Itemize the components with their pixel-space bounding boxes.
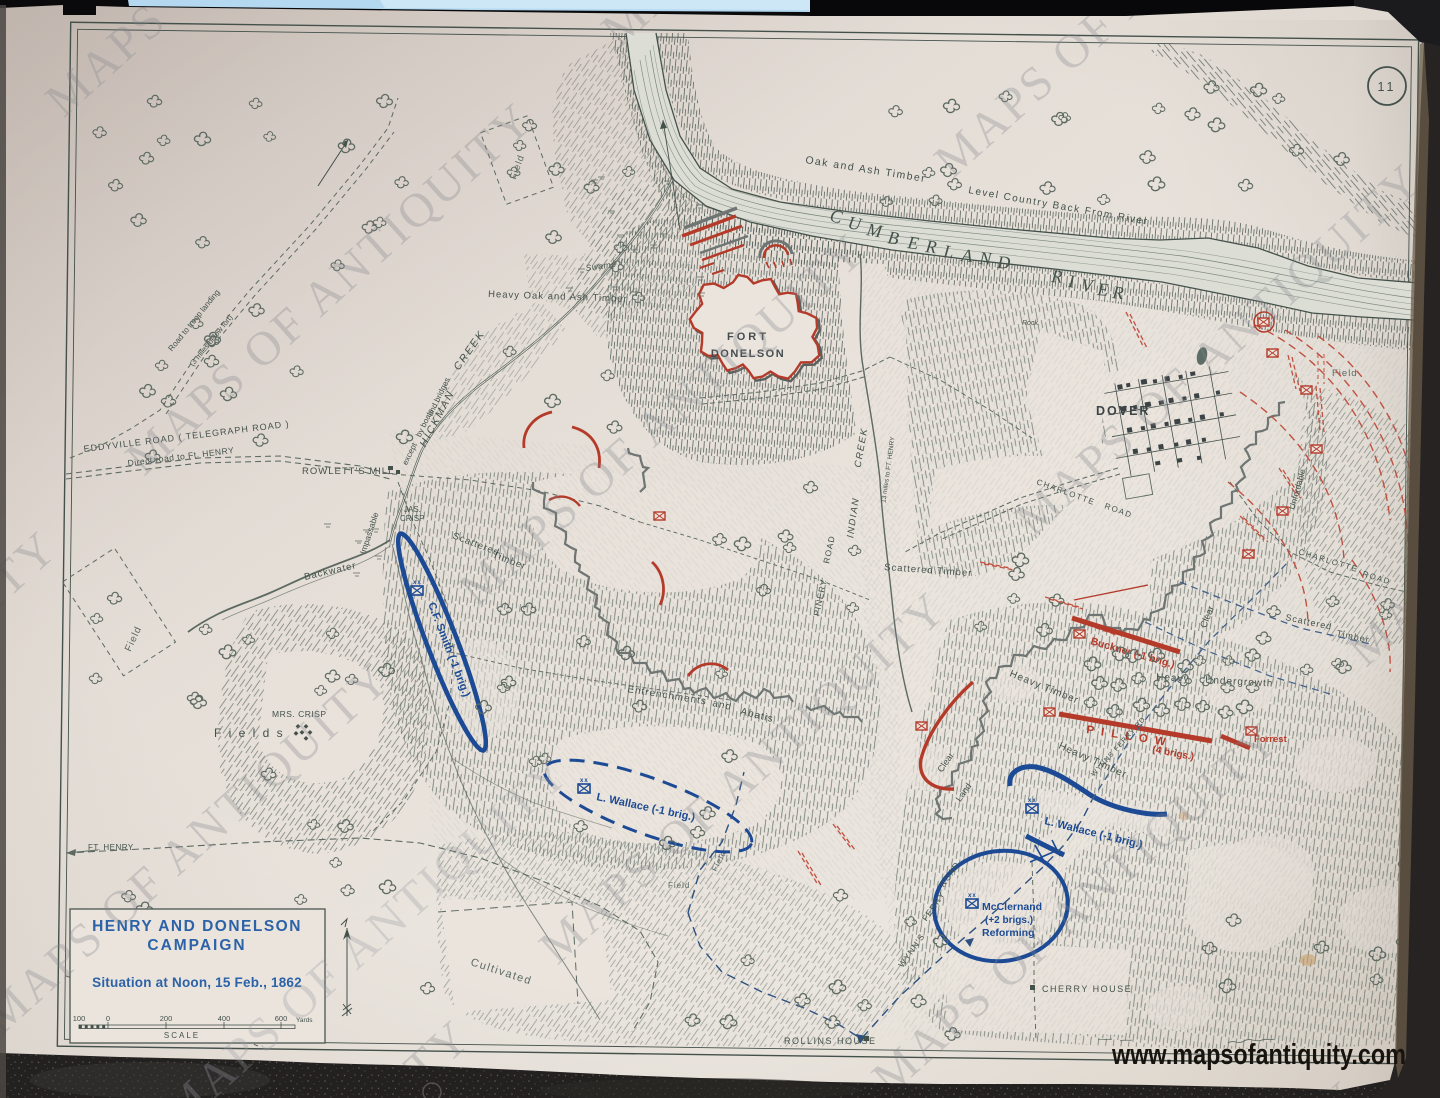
- svg-text:R: R: [924, 236, 938, 257]
- svg-text:D: D: [996, 252, 1011, 273]
- svg-text:L: L: [942, 241, 955, 262]
- svg-text:CHERRY HOUSE: CHERRY HOUSE: [1042, 984, 1132, 994]
- svg-text:ROWLETT'S MILL: ROWLETT'S MILL: [302, 466, 394, 477]
- svg-text:FT. HENRY: FT. HENRY: [88, 843, 134, 852]
- svg-text:JAS.: JAS.: [404, 505, 421, 514]
- svg-text:0: 0: [106, 1014, 110, 1023]
- svg-text:Heavy: Heavy: [1156, 672, 1190, 685]
- svg-text:11: 11: [1378, 80, 1397, 94]
- svg-text:Rock: Rock: [1022, 320, 1038, 327]
- svg-text:SCALE: SCALE: [164, 1031, 200, 1040]
- svg-text:Field: Field: [1332, 368, 1358, 379]
- svg-text:CAMPAIGN: CAMPAIGN: [147, 937, 246, 954]
- svg-text:www.mapsofantiquity.com: www.mapsofantiquity.com: [1111, 1039, 1406, 1071]
- svg-text:ROLLINS HOUSE: ROLLINS HOUSE: [784, 1036, 877, 1046]
- svg-text:100: 100: [73, 1014, 86, 1023]
- svg-text:N: N: [978, 248, 993, 269]
- svg-text:R: R: [1050, 266, 1063, 287]
- svg-text:Field: Field: [668, 881, 690, 890]
- svg-text:400: 400: [218, 1014, 231, 1023]
- svg-text:E: E: [1096, 279, 1110, 300]
- svg-text:200: 200: [160, 1014, 173, 1023]
- svg-text:Situation at Noon, 15 Feb., 1: Situation at Noon, 15 Feb., 1862: [92, 975, 302, 990]
- svg-text:CRISP: CRISP: [400, 514, 424, 523]
- svg-text:R: R: [1111, 282, 1125, 303]
